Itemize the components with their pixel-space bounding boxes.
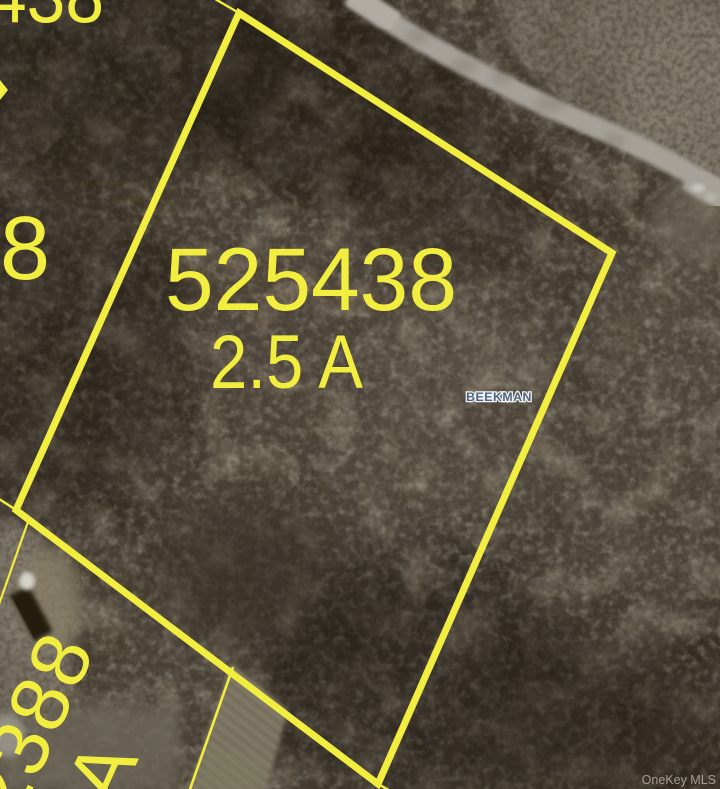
- svg-text:2.5 A: 2.5 A: [210, 320, 363, 405]
- svg-text:525438: 525438: [165, 229, 457, 329]
- svg-text:8: 8: [0, 199, 50, 299]
- svg-text:BEEKMAN: BEEKMAN: [466, 390, 532, 404]
- svg-text:OneKey MLS: OneKey MLS: [642, 773, 716, 787]
- svg-text:438: 438: [0, 0, 104, 39]
